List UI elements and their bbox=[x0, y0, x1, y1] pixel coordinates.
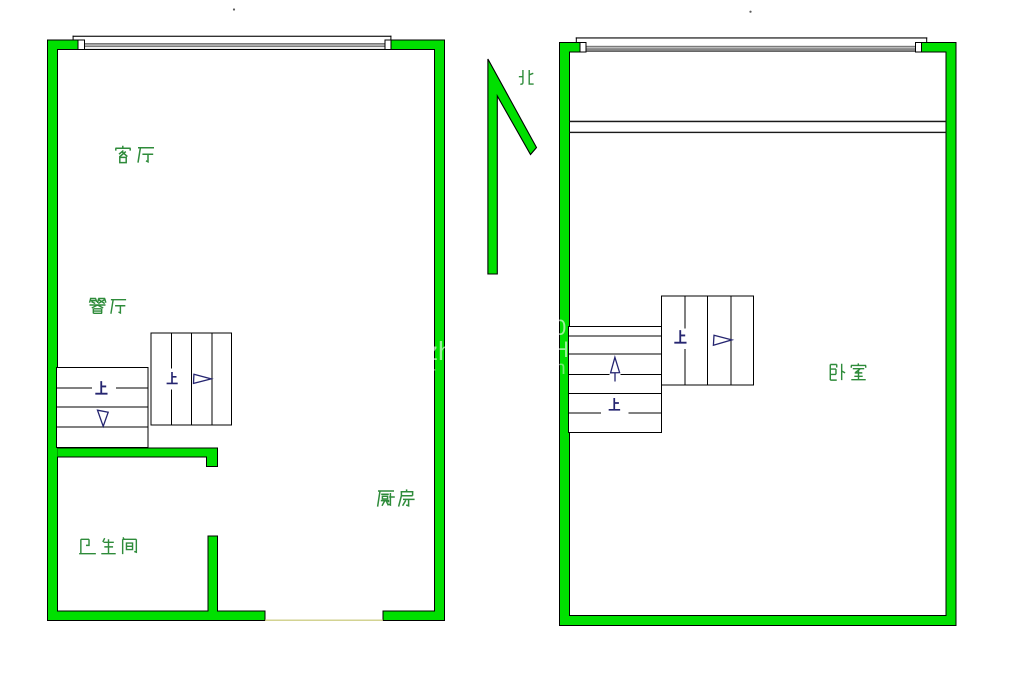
svg-text:h: h bbox=[555, 358, 566, 379]
svg-text:zh: zh bbox=[425, 336, 452, 366]
svg-text:r: r bbox=[429, 363, 436, 385]
